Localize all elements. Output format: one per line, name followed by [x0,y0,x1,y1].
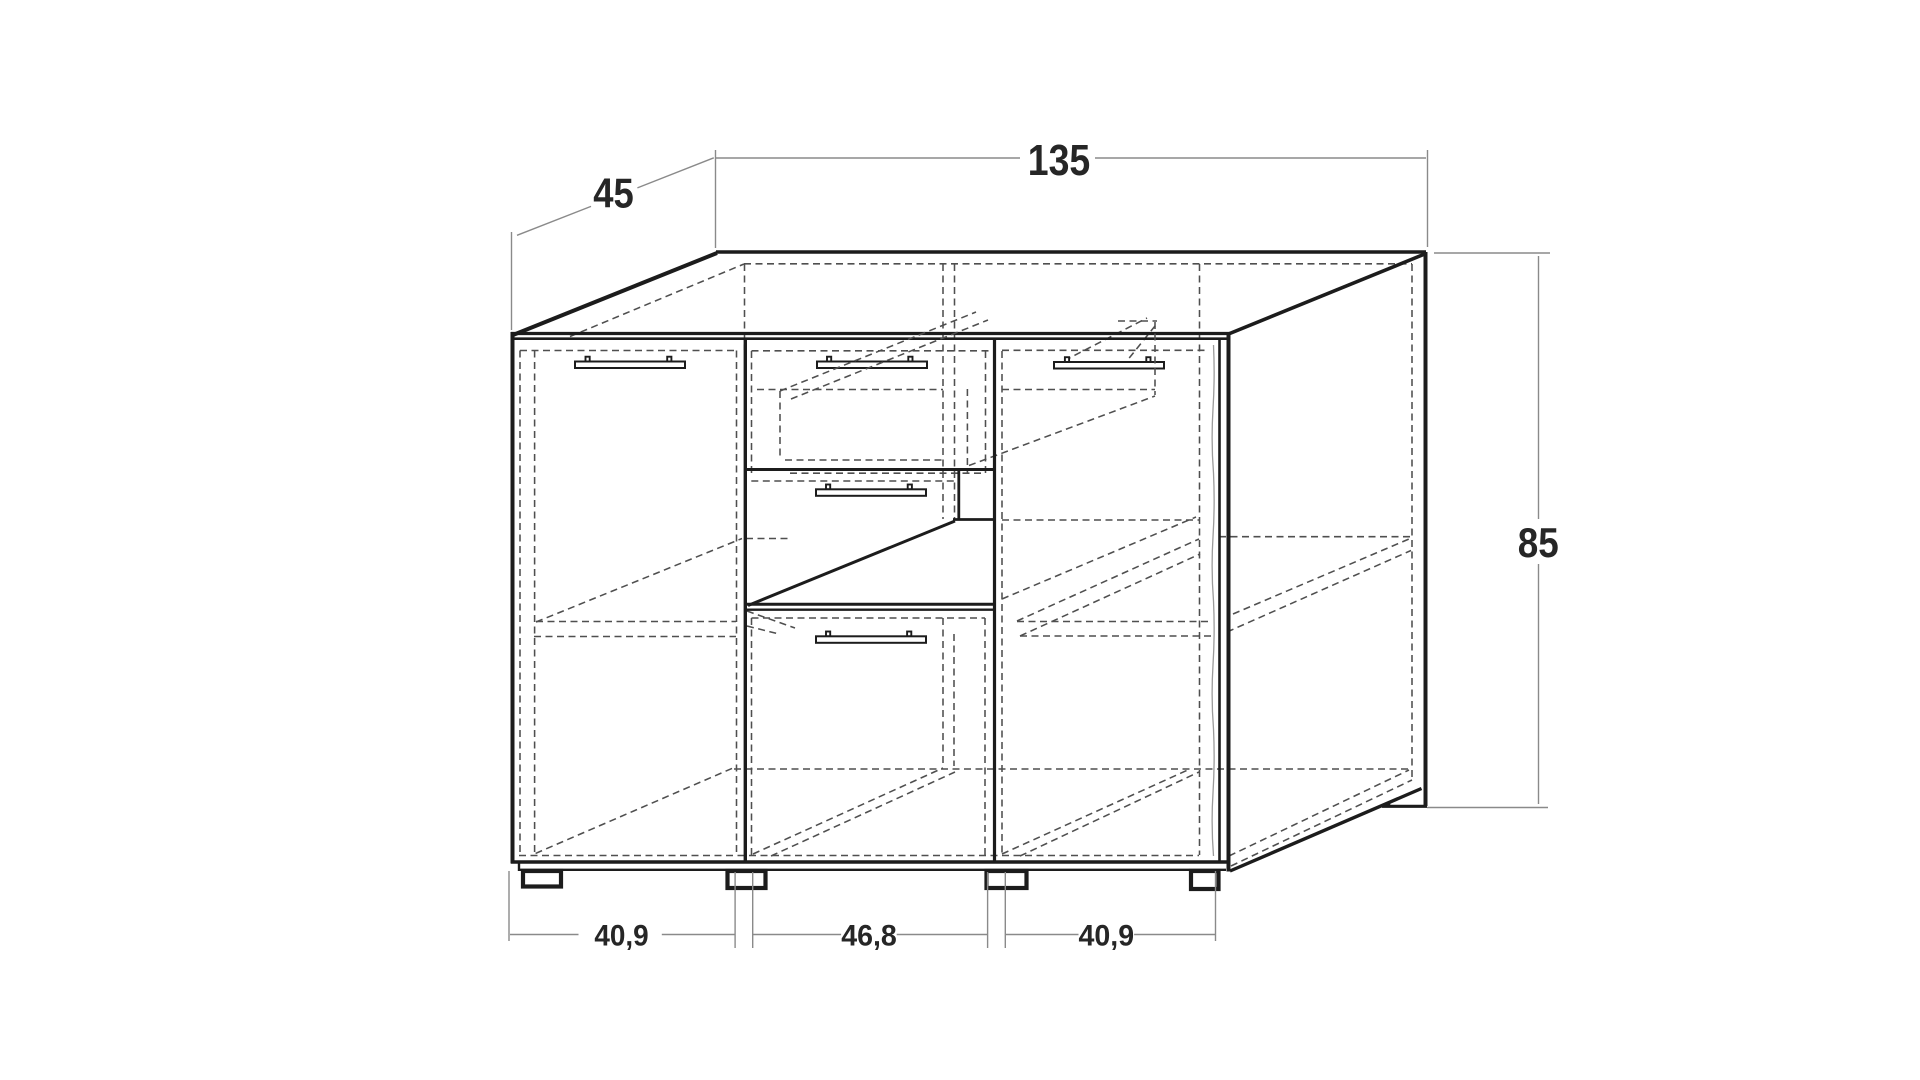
svg-text:45: 45 [593,170,634,217]
svg-text:46,8: 46,8 [841,920,897,953]
svg-text:135: 135 [1028,136,1091,185]
svg-text:40,9: 40,9 [594,920,648,953]
svg-text:40,9: 40,9 [1079,920,1135,953]
svg-text:85: 85 [1518,519,1559,566]
